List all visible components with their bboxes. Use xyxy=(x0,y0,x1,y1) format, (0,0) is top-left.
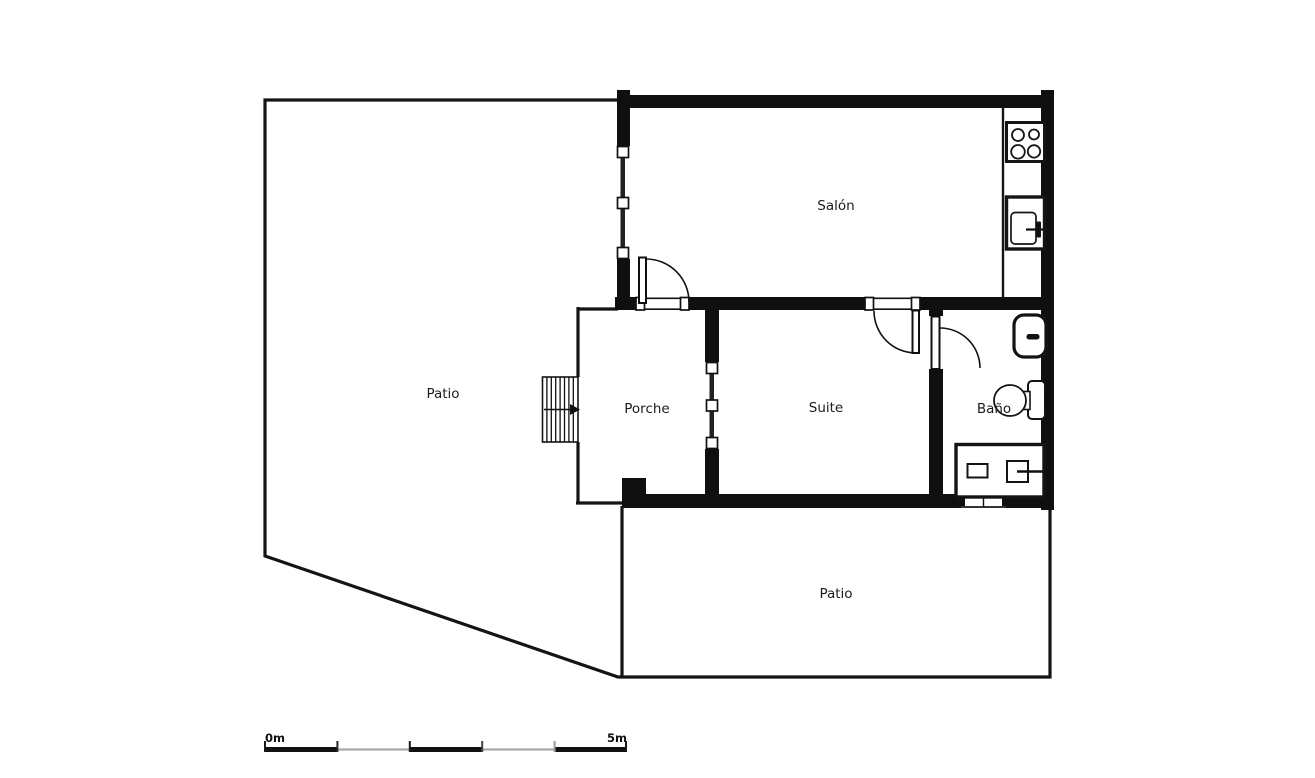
wall-suite-bano-stub xyxy=(929,310,943,316)
room-label-porche: Porche xyxy=(624,401,669,417)
room-label-salon: Salón xyxy=(817,198,854,214)
room-label-bano: Baño xyxy=(977,401,1011,417)
scale-start-label: 0m xyxy=(265,731,285,745)
wall-mid-c xyxy=(920,297,1054,310)
porch-pillar xyxy=(622,478,646,498)
porche-suite-window-icon xyxy=(705,362,719,449)
scale-end-label: 5m xyxy=(607,731,627,745)
room-label-suite: Suite xyxy=(809,400,843,416)
suite-door-opening xyxy=(865,297,920,312)
bano-door-icon xyxy=(932,317,981,370)
shower-icon xyxy=(956,445,1047,498)
scale-bar: 0m 5m xyxy=(264,731,627,752)
wall-top xyxy=(617,95,1054,108)
stove-icon xyxy=(1007,123,1045,162)
wall-mid-a xyxy=(615,297,637,310)
wall-suite-bano xyxy=(929,369,943,503)
kitchen-sink-icon xyxy=(1007,197,1045,249)
wall-porche-suite-a xyxy=(705,310,719,363)
floor-plan-page: Salón Patio Porche Suite Baño Patio 0m 5… xyxy=(0,0,1315,778)
bathroom-sink-icon xyxy=(1014,315,1046,357)
room-label-patio-left: Patio xyxy=(426,386,459,402)
room-label-patio-bottom: Patio xyxy=(819,586,852,602)
suite-door-icon xyxy=(874,311,919,354)
salon-door-icon xyxy=(639,258,689,304)
wall-mid-b xyxy=(689,297,866,310)
wall-bottom-a xyxy=(622,494,961,508)
porch-outline xyxy=(576,307,624,504)
salon-window-icon xyxy=(616,146,630,259)
floor-plan-canvas: Salón Patio Porche Suite Baño Patio 0m 5… xyxy=(0,0,1315,778)
